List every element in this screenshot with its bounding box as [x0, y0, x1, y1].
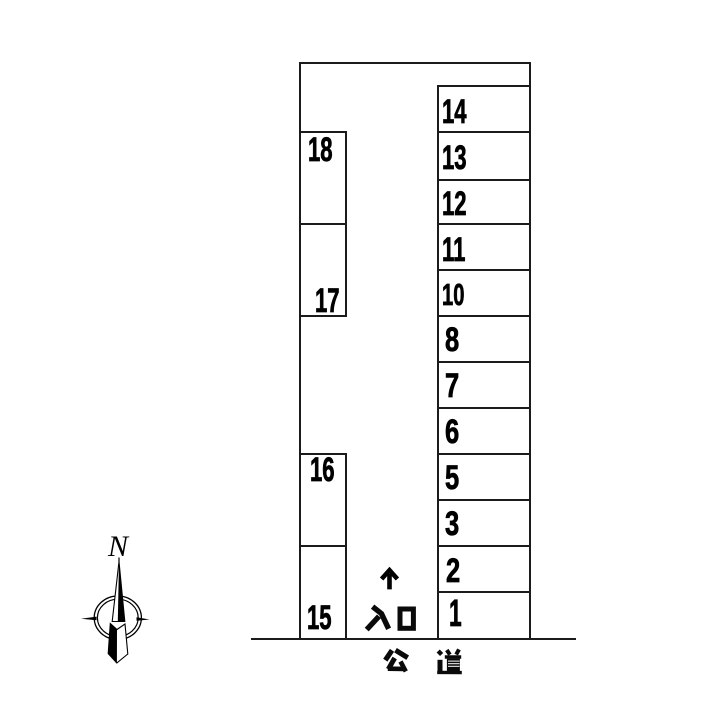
- svg-text:N: N: [107, 535, 130, 563]
